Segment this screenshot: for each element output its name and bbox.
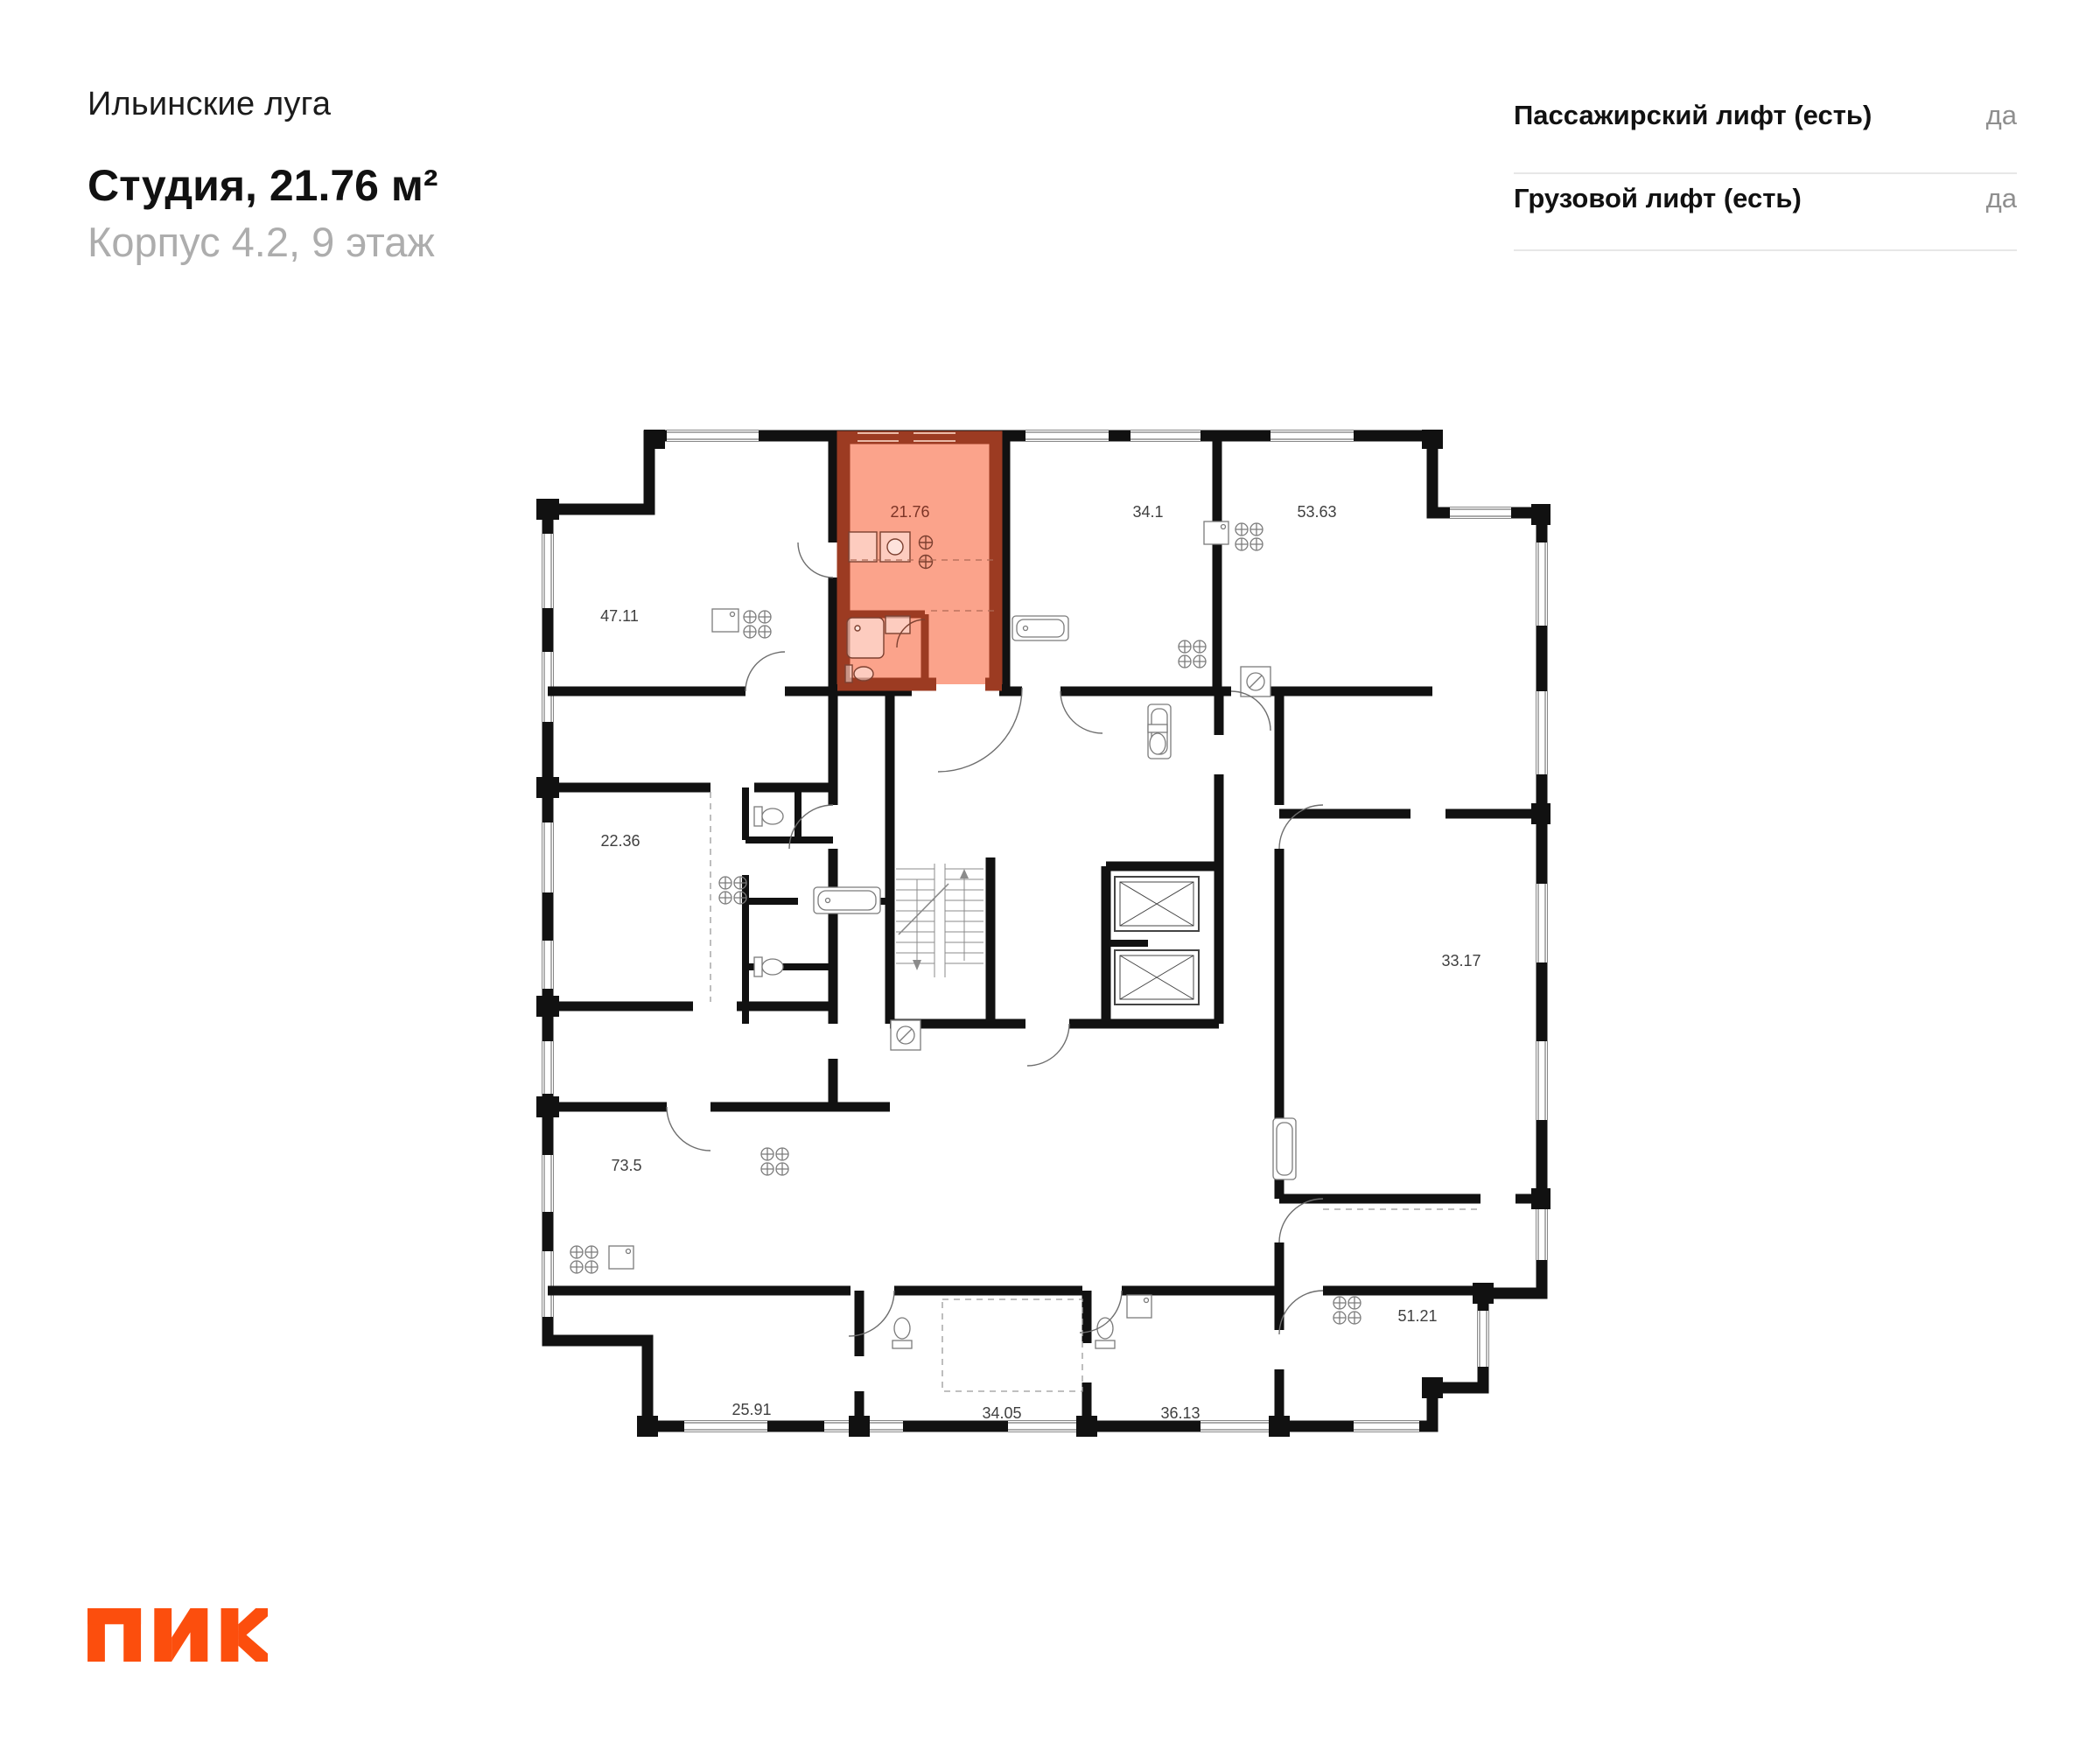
- page-subtitle: Корпус 4.2, 9 этаж: [87, 218, 438, 266]
- toilet-icon: [845, 665, 873, 682]
- room-area-label: 34.1: [1132, 503, 1163, 521]
- washing-machine-icon: [1241, 667, 1270, 696]
- bathtub-icon: [814, 887, 880, 913]
- toilet-icon: [754, 957, 783, 976]
- header: Ильинские луга Студия, 21.76 м² Корпус 4…: [87, 86, 438, 266]
- floor-plan-svg: 21.7647.1134.153.6322.3633.1773.525.9134…: [535, 429, 1550, 1452]
- elevator-shaft-icon: [1115, 950, 1199, 1004]
- toilet-icon: [1148, 724, 1167, 754]
- lift-cargo-label: Грузовой лифт (есть): [1514, 183, 1802, 214]
- washing-machine-icon: [880, 532, 910, 562]
- lift-passenger-label: Пассажирский лифт (есть): [1514, 100, 1872, 131]
- toilet-icon: [1095, 1318, 1115, 1348]
- lift-info-panel: Пассажирский лифт (есть) да Грузовой лиф…: [1514, 91, 2017, 251]
- page: Ильинские луга Студия, 21.76 м² Корпус 4…: [0, 0, 2100, 1750]
- bathtub-icon: [1012, 616, 1068, 640]
- toilet-icon: [754, 807, 783, 826]
- toilet-icon: [892, 1318, 912, 1348]
- sink-icon: [1127, 1295, 1151, 1318]
- highlighted-unit[interactable]: [837, 433, 1002, 684]
- room-area-label: 33.17: [1441, 952, 1480, 969]
- lift-info-row-cargo: Грузовой лифт (есть) да: [1514, 174, 2017, 251]
- lift-info-row-passenger: Пассажирский лифт (есть) да: [1514, 91, 2017, 174]
- lift-passenger-value: да: [1986, 100, 2017, 131]
- sink-icon: [712, 609, 738, 632]
- room-area-label: 34.05: [982, 1404, 1021, 1422]
- elevator-shaft-icon: [1115, 877, 1199, 931]
- room-area-label: 22.36: [600, 832, 640, 850]
- room-area-label: 25.91: [731, 1401, 771, 1418]
- room-area-label: 36.13: [1160, 1404, 1200, 1422]
- project-name: Ильинские луга: [87, 86, 438, 123]
- page-title: Студия, 21.76 м²: [87, 160, 438, 211]
- room-area-label: 73.5: [611, 1157, 641, 1174]
- sink-icon: [1204, 521, 1228, 544]
- sink-icon: [609, 1246, 633, 1269]
- washing-machine-icon: [891, 1020, 920, 1050]
- bathtub-icon: [1273, 1118, 1296, 1179]
- pik-logo: [87, 1608, 268, 1662]
- room-area-label: 47.11: [600, 607, 639, 625]
- shower-icon: [847, 618, 884, 658]
- room-area-label: 53.63: [1297, 503, 1336, 521]
- building-outline: [548, 436, 1542, 1426]
- room-area-label: 21.76: [890, 503, 929, 521]
- lift-cargo-value: да: [1986, 183, 2017, 214]
- sink-icon: [885, 616, 910, 633]
- room-area-label: 51.21: [1397, 1307, 1437, 1325]
